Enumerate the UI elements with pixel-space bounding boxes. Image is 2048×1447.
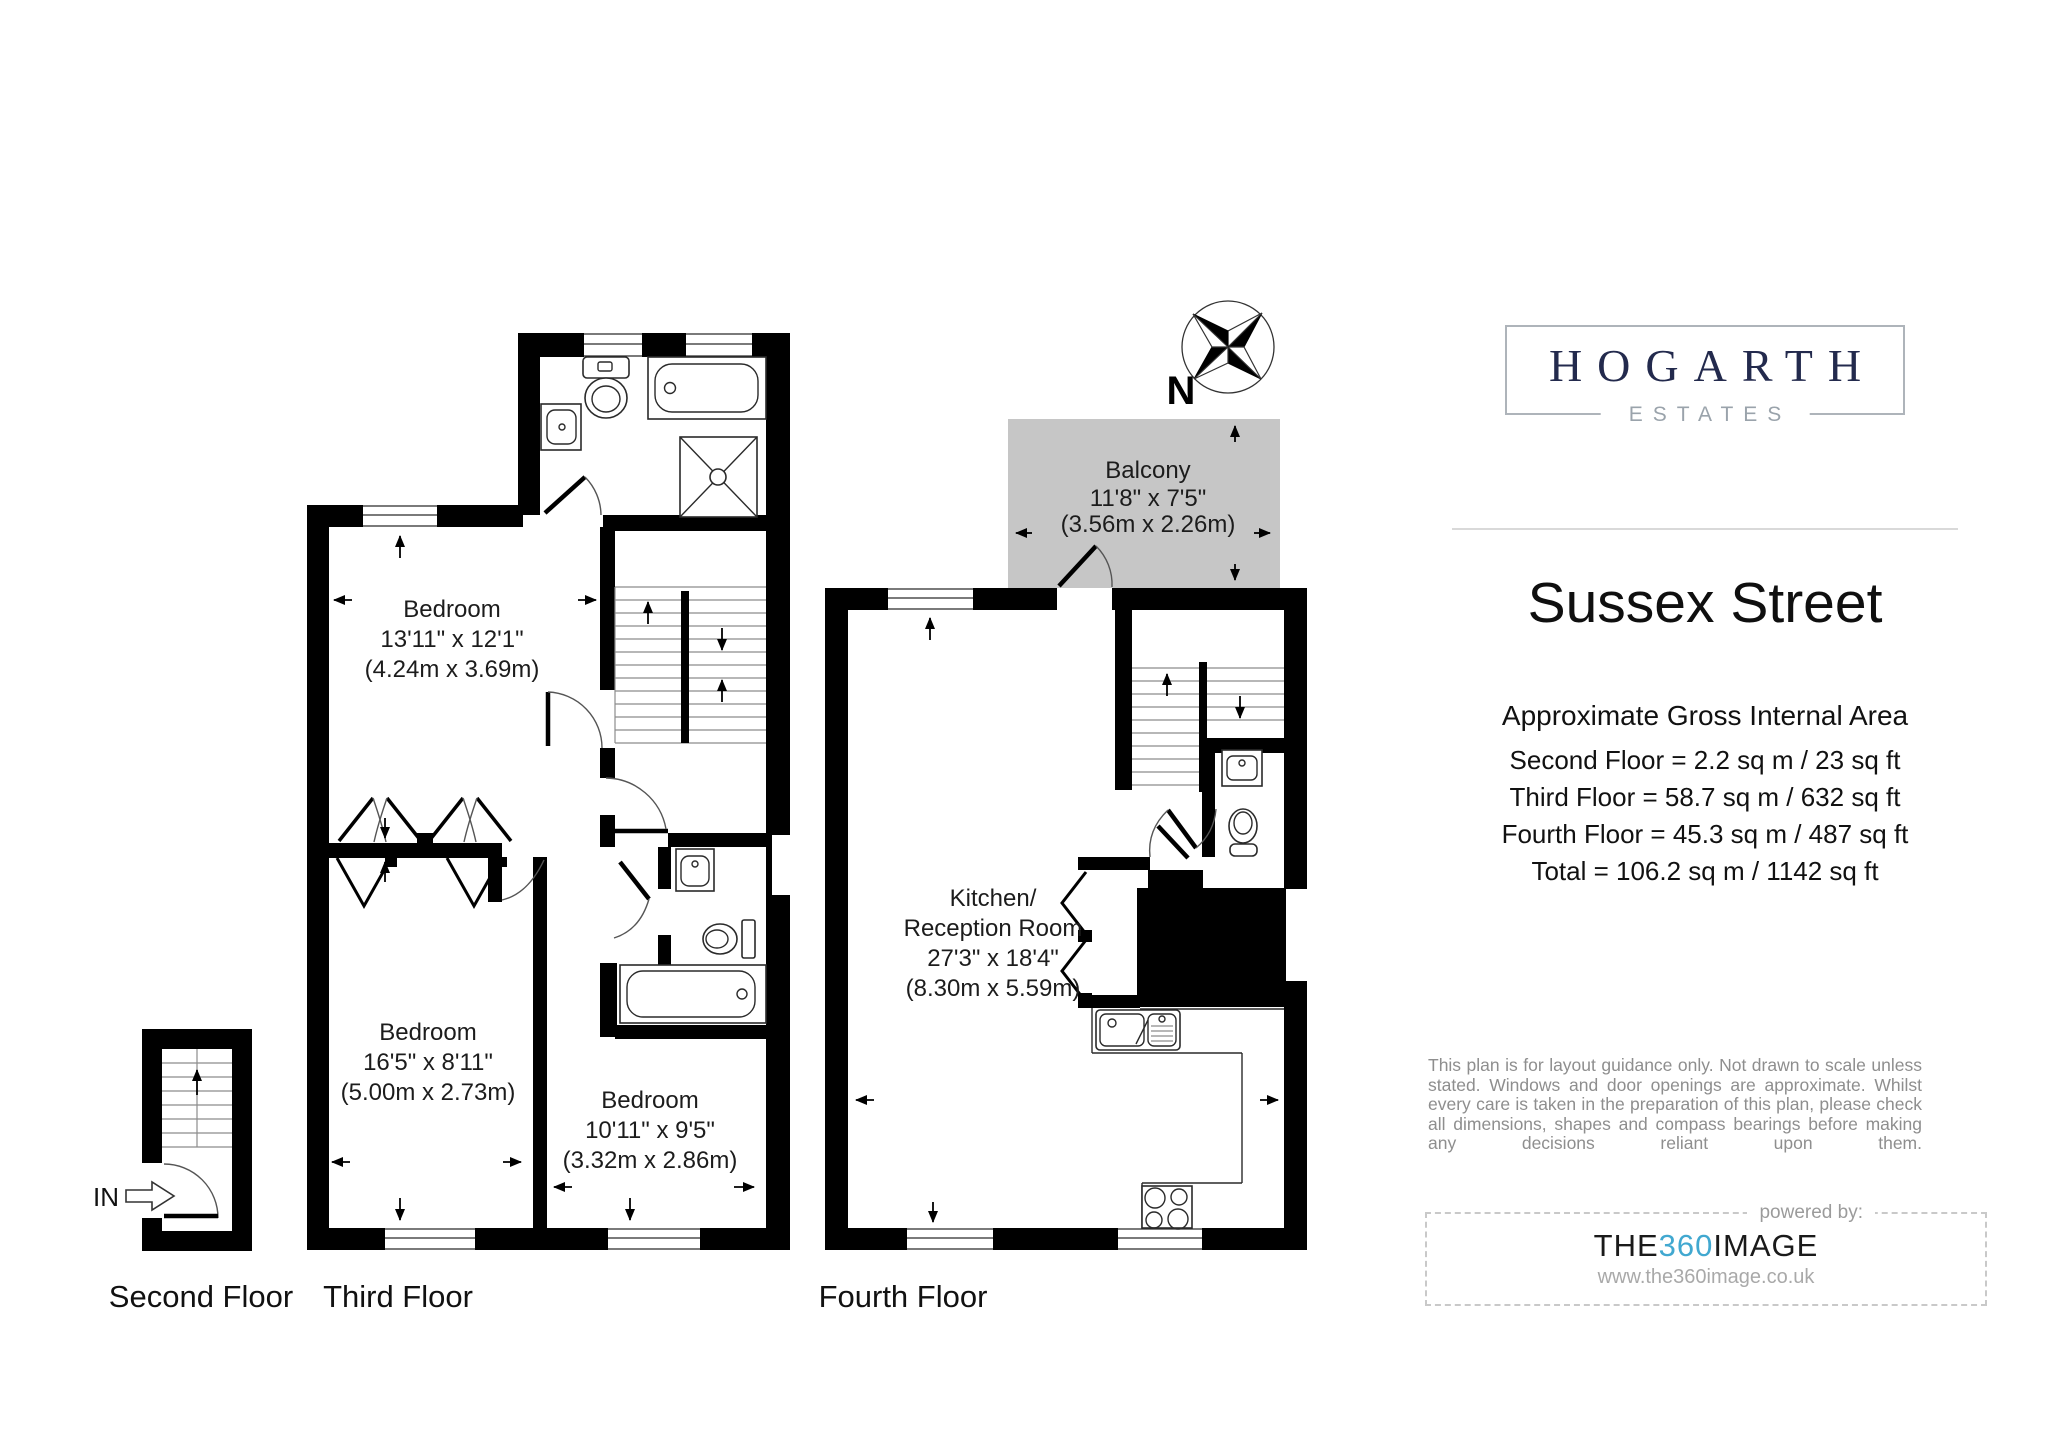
divider-line [1452, 528, 1958, 530]
agency-subtitle: ESTATES [1601, 403, 1810, 427]
the360image-logo: THE360IMAGE [1427, 1228, 1985, 1264]
bedroom2-metric: (5.00m x 2.73m) [341, 1079, 516, 1106]
bedroom3-metric: (3.32m x 2.86m) [563, 1147, 738, 1174]
ensuite-door-arc [614, 899, 649, 938]
disclaimer-text: This plan is for layout guidance only. N… [1428, 1056, 1922, 1154]
the360image-url: www.the360image.co.uk [1427, 1266, 1985, 1289]
compass-icon: N [1167, 301, 1274, 413]
third-floor-plan: Bedroom 13'11" x 12'1" (4.24m x 3.69m) B… [307, 333, 790, 1314]
wardrobe-doors [337, 857, 507, 906]
bathtub-icon [648, 357, 766, 419]
kitchen-name-line2: Reception Room [904, 915, 1083, 942]
balcony-metric: (3.56m x 2.26m) [1061, 511, 1236, 538]
kitchen-name-line1: Kitchen/ [950, 885, 1037, 912]
bedroom3-name: Bedroom [601, 1087, 698, 1114]
area-line-second: Second Floor = 2.2 sq m / 23 sq ft [1440, 742, 1970, 779]
area-line-fourth: Fourth Floor = 45.3 sq m / 487 sq ft [1440, 816, 1970, 853]
powered-by-box: powered by: THE360IMAGE www.the360image.… [1425, 1212, 1987, 1306]
third-floor-label: Third Floor [323, 1279, 473, 1314]
sink-icon [676, 849, 714, 891]
closet-doors [339, 798, 511, 844]
area-summary: Approximate Gross Internal Area Second F… [1440, 700, 1970, 890]
agency-name: HOGARTH [1507, 339, 1903, 392]
toilet-icon [703, 920, 755, 958]
staircase [615, 587, 766, 743]
sink-icon [1222, 750, 1262, 786]
bedroom1-door-arc [548, 692, 602, 748]
bedroom2-name: Bedroom [379, 1019, 476, 1046]
toilet-icon [583, 357, 629, 418]
fourth-floor-label: Fourth Floor [819, 1279, 988, 1314]
area-line-total: Total = 106.2 sq m / 1142 sq ft [1440, 853, 1970, 890]
agency-logo: HOGARTH ESTATES [1505, 325, 1905, 415]
ensuite-door-leaf [620, 862, 649, 899]
bedroom2-imperial: 16'5" x 8'11" [363, 1049, 493, 1076]
toilet-icon [1229, 809, 1257, 856]
bathroom-door-arc [585, 477, 601, 515]
bathroom-door-leaf [545, 477, 585, 513]
brand-pre: THE [1594, 1228, 1659, 1263]
kitchen-metric: (8.30m x 5.59m) [906, 975, 1081, 1002]
brand-mid: 360 [1659, 1228, 1714, 1263]
second-floor-plan: IN Second Floor [93, 1029, 293, 1314]
north-label: N [1167, 369, 1196, 413]
area-heading: Approximate Gross Internal Area [1440, 700, 1970, 732]
balcony-name: Balcony [1105, 457, 1190, 484]
bedroom3-imperial: 10'11" x 9'5" [585, 1117, 715, 1144]
entry-in-label: IN [93, 1182, 119, 1212]
fourth-floor-plan: Balcony 11'8" x 7'5" (3.56m x 2.26m) [819, 419, 1307, 1314]
kitchen-imperial: 27'3" x 18'4" [927, 945, 1059, 972]
shower-icon [680, 437, 757, 517]
kitchen-sink-icon [1096, 1010, 1180, 1050]
second-floor-label: Second Floor [109, 1279, 293, 1314]
bedroom1-imperial: 13'11" x 12'1" [380, 626, 523, 653]
bedroom1-metric: (4.24m x 3.69m) [365, 656, 540, 683]
powered-by-caption: powered by: [1747, 1202, 1875, 1224]
sink-icon [541, 404, 581, 450]
brand-post: IMAGE [1713, 1228, 1818, 1263]
hob-icon [1142, 1186, 1192, 1229]
page-title: Sussex Street [1440, 570, 1970, 636]
bathtub-icon [620, 965, 766, 1023]
area-line-third: Third Floor = 58.7 sq m / 632 sq ft [1440, 779, 1970, 816]
balcony-imperial: 11'8" x 7'5" [1090, 485, 1207, 512]
bedroom1-name: Bedroom [403, 596, 500, 623]
